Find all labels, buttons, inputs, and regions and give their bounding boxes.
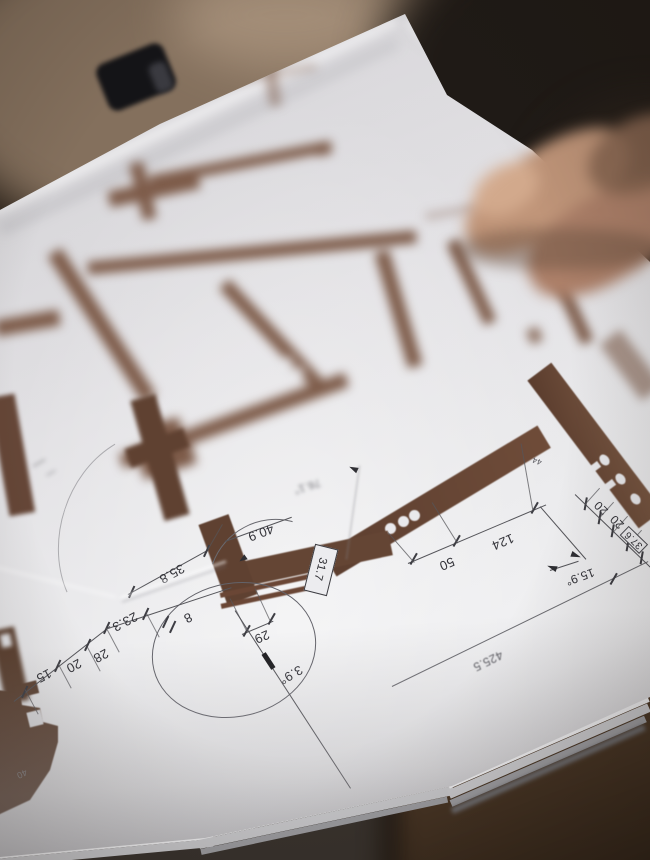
finger-shadow [455, 228, 650, 270]
photo-blueprint-scene: 15 20 28 23.3 8 35.8 29 40.9 76.1° 3.9° … [0, 0, 650, 860]
hand-group [0, 0, 650, 860]
